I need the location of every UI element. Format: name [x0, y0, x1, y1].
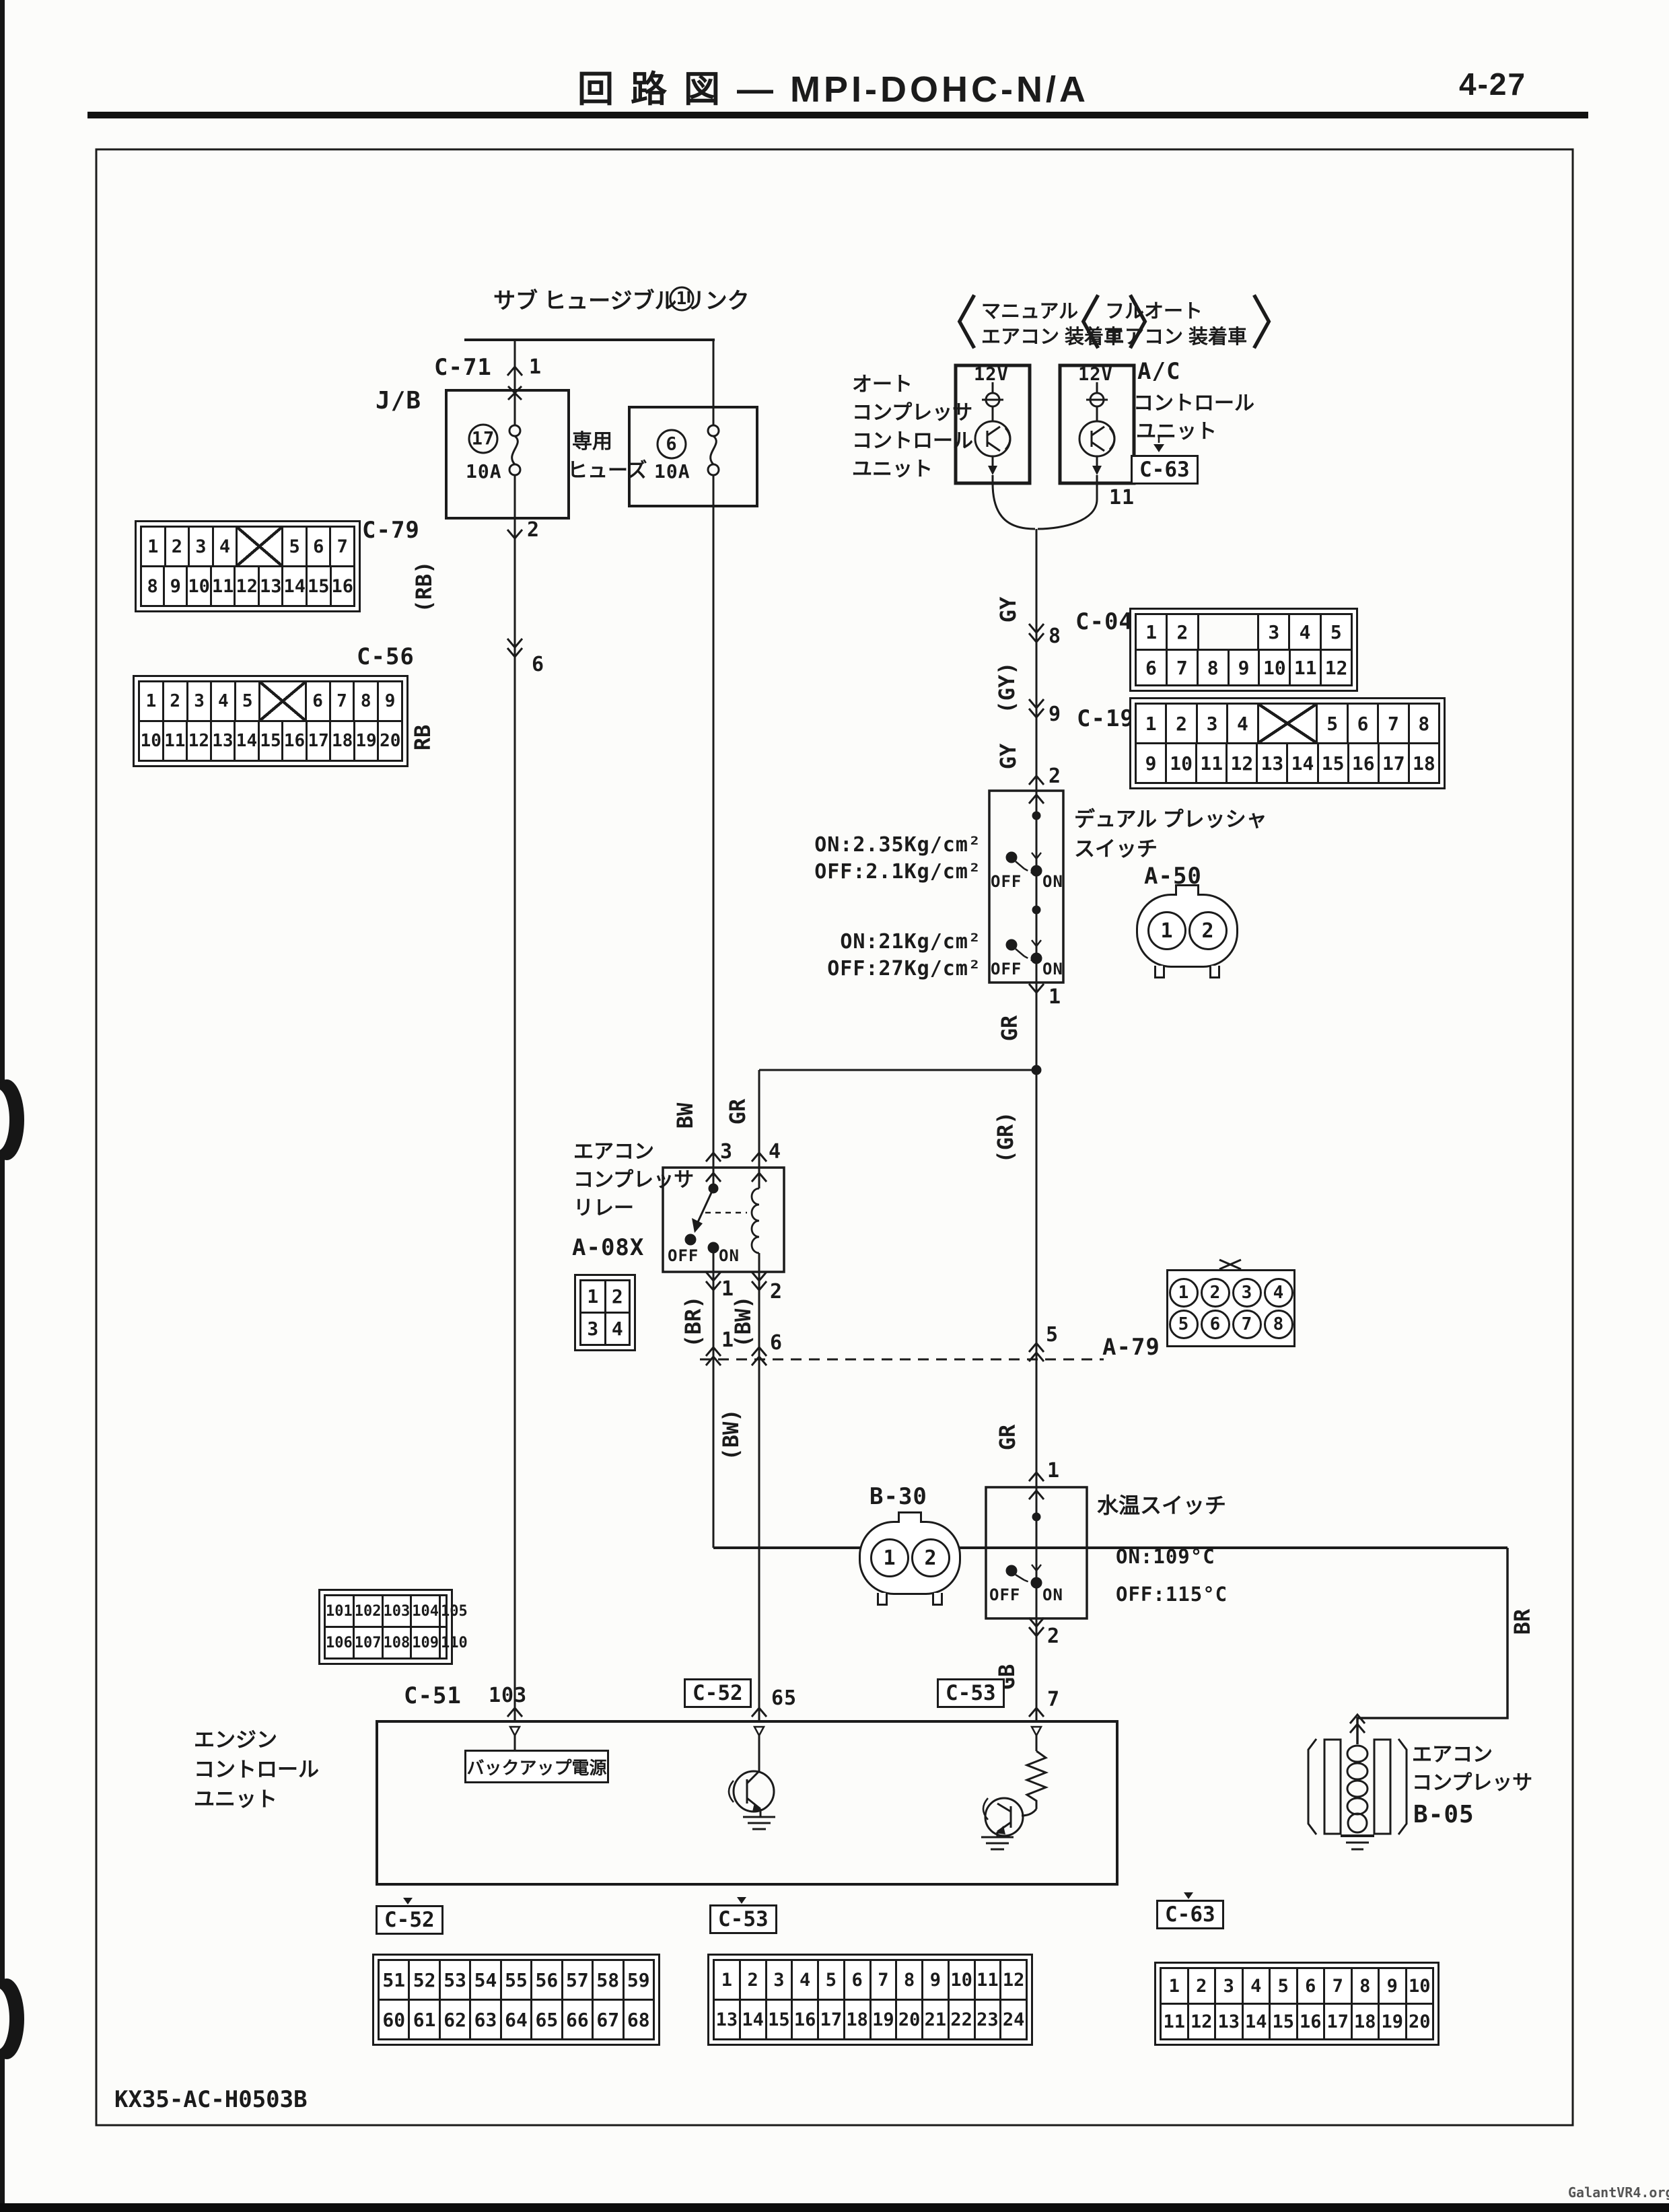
pin-cell-15: 15: [260, 722, 284, 760]
pin-relay-2: 2: [770, 1280, 783, 1304]
pin-cell-5: 5: [1318, 705, 1348, 742]
pressure-switch-name-2: スイッチ: [1074, 832, 1158, 862]
pin-cell-21: 21: [923, 2001, 950, 2038]
connector-body: 1234567891011121314151617181920: [1160, 1967, 1434, 2040]
pin-cell-4: 4: [606, 1314, 629, 1344]
pin-a79-6: 6: [770, 1331, 783, 1355]
pin-cell-19: 19: [1380, 2005, 1407, 2038]
connector-body: 123456789101112131415161718192021222324: [713, 1959, 1028, 2040]
fullauto-ac-tag: 〈 フルオート エアコン 装着車 〉: [1051, 296, 1301, 353]
pin-cell-6: 6: [1298, 1969, 1326, 2003]
connector-ref-b30: B-30: [869, 1483, 927, 1510]
pin-cell-52: 52: [410, 1961, 440, 1999]
water-switch-off-temp: OFF:115°C: [1116, 1583, 1228, 1606]
wire-label-rb-paren: (RB): [411, 561, 437, 612]
pin-cell-4: 4: [1228, 705, 1258, 742]
pin-cell-10: 10: [188, 567, 212, 605]
pressure-lo-off: OFF:27Kg/cm²: [774, 957, 981, 980]
pin-cell-5: 5: [1271, 1969, 1298, 2003]
fusible-link-label: サブ ヒュージブル リンク: [493, 283, 750, 315]
blocked-cavity: [1259, 705, 1318, 742]
pin-relay-4: 4: [769, 1140, 781, 1164]
pin-cell-5: 5: [283, 528, 308, 565]
pin-row: 12: [581, 1281, 629, 1312]
bracket-open: 〈: [1051, 292, 1102, 357]
pin-cell-2: 2: [1189, 1969, 1217, 2003]
connector-leg: [1154, 966, 1165, 978]
connector-ref-c51: C-51: [404, 1682, 462, 1709]
component-boxes: [377, 365, 1134, 1884]
pin-cell-22: 22: [950, 2001, 976, 2038]
junction-block-label: J/B: [376, 387, 421, 415]
pin-cell-68: 68: [625, 2001, 653, 2038]
pin-cell-54: 54: [471, 1961, 501, 1999]
pin-cell-5: 5: [236, 682, 260, 720]
pin-cell-1: 1: [1137, 615, 1168, 649]
pin-row: 131415161718192021222324: [715, 1999, 1026, 2038]
connector-body: 12345678910111213141516: [140, 526, 355, 607]
pin-3: 3: [1232, 1278, 1262, 1308]
pin-cell-14: 14: [283, 567, 308, 605]
page-frame: [87, 112, 1588, 2125]
pin-cell-15: 15: [1271, 2005, 1298, 2038]
pin-row: 8910111213141516: [142, 565, 353, 605]
connector-c51: 101102103104105106107108109110: [318, 1589, 453, 1665]
connector-tab: [1175, 884, 1199, 896]
schematic-lines: [0, 0, 1669, 2212]
connector-body: 123456789101112131415161718: [1135, 703, 1440, 784]
connector-body: 101102103104105106107108109110: [324, 1594, 448, 1660]
pressure-switch-name-1: デュアル プレッシャ: [1074, 802, 1267, 832]
pin-row: 12345: [1137, 615, 1351, 649]
psw2-off-label: OFF: [991, 960, 1022, 978]
pin-cell-6: 6: [1349, 705, 1379, 742]
pin-cell-17: 17: [1380, 744, 1410, 782]
pin-row: 606162636465666768: [380, 1999, 653, 2038]
pin-4: 4: [1264, 1278, 1293, 1308]
pin-row: 515253545556575859: [380, 1961, 653, 1999]
blocked-cavity: [238, 528, 283, 565]
pin-cell-106: 106: [326, 1628, 355, 1657]
ecu-name-3: ユニット: [194, 1782, 277, 1812]
pin-11: 11: [1109, 486, 1135, 509]
pin-cell-2: 2: [164, 682, 188, 720]
connector-body: 1234567891011121314151617181920: [138, 680, 403, 762]
pin-b30-2: 2: [1047, 1625, 1060, 1648]
pressure-lo-on: ON:21Kg/cm²: [774, 930, 981, 954]
fuse-6-number: 6: [666, 434, 677, 455]
pin-row: 123456789101112: [715, 1961, 1026, 1999]
pin-cell-7: 7: [331, 528, 353, 565]
pin-cell-15: 15: [767, 2001, 793, 2038]
pin-c71-1: 1: [529, 355, 542, 379]
pin-row: 1234: [1169, 1278, 1293, 1308]
pin-cell-18: 18: [845, 2001, 872, 2038]
pin-cell-4: 4: [1290, 615, 1321, 649]
pin-cell-61: 61: [410, 2001, 440, 2038]
pin-cell-12: 12: [1001, 1961, 1026, 1999]
connector-leg: [932, 1593, 943, 1606]
pin-row: 12345678910: [1162, 1969, 1432, 2003]
pin-cell-9: 9: [379, 682, 401, 720]
pin-cell-1: 1: [1162, 1969, 1189, 2003]
pin-psw-2: 2: [1049, 764, 1061, 788]
ac-control-unit-2: コントロール: [1133, 386, 1254, 416]
pressure-hi-on: ON:2.35Kg/cm²: [774, 833, 981, 857]
connector-c19: 123456789101112131415161718: [1129, 697, 1446, 789]
pin-cell-12: 12: [188, 722, 212, 760]
cavity-gap: [1199, 615, 1260, 649]
wire-label-gr-2: GR: [995, 1425, 1020, 1451]
pin-cell-14: 14: [1244, 2005, 1271, 2038]
pin-cell-6: 6: [307, 682, 331, 720]
pin-cell-20: 20: [897, 2001, 923, 2038]
pin-cell-13: 13: [715, 2001, 741, 2038]
connector-b30: 12: [859, 1521, 961, 1595]
pin-row: 5678: [1169, 1310, 1293, 1339]
wire-label-gy-2: GY: [995, 744, 1021, 770]
connector-c04: 123456789101112: [1129, 608, 1358, 692]
pin-cell-110: 110: [441, 1628, 468, 1657]
page-number: 4-27: [1459, 66, 1526, 102]
pin-cell-6: 6: [845, 1961, 872, 1999]
connector-ref-c56: C-56: [357, 643, 415, 670]
pin-row: 11121314151617181920: [1162, 2003, 1432, 2038]
pin-cell-1: 1: [142, 528, 166, 565]
pin-cell-1: 1: [715, 1961, 741, 1999]
watermark: GalantVR4.org: [1568, 2184, 1669, 2201]
wire-label-br: BR: [1510, 1609, 1535, 1635]
pin-cell-105: 105: [441, 1596, 468, 1626]
connector-ref-b05: B-05: [1413, 1801, 1475, 1828]
pin-cell-107: 107: [355, 1628, 384, 1657]
ecu-name-2: コントロール: [194, 1752, 319, 1783]
pin-row: 34: [581, 1312, 629, 1344]
pin-cell-16: 16: [793, 2001, 819, 2038]
pin-cell-20: 20: [379, 722, 401, 760]
ecu-transistors: [510, 1727, 1046, 1849]
pin-b30-1: 1: [1047, 1459, 1060, 1483]
scan-artifacts: [0, 0, 1669, 2212]
connector-body: 123456789101112: [1135, 613, 1353, 686]
pin-cell-3: 3: [767, 1961, 793, 1999]
ac-control-unit-3: ユニット: [1136, 415, 1217, 444]
pin-5: 5: [1169, 1310, 1199, 1339]
pin-cell-11: 11: [1291, 651, 1322, 684]
fuse-17-number: 17: [472, 429, 495, 450]
pin-cell-11: 11: [164, 722, 188, 760]
pin-c79-2: 2: [527, 518, 540, 542]
pin-cell-7: 7: [1325, 1969, 1353, 2003]
b30-off-label: OFF: [989, 1585, 1020, 1604]
pin-row: 9101112131415161718: [1137, 742, 1438, 782]
pin-c19-9: 9: [1049, 703, 1061, 726]
wire-label-gy-paren: (GY): [994, 662, 1020, 713]
pin-cell-102: 102: [355, 1596, 384, 1626]
wire-label-gy-1: GY: [995, 597, 1021, 623]
wire-label-gr-paren: (GR): [993, 1111, 1018, 1163]
wiring-diagram-page: 回 路 図 — MPI-DOHC-N/A 4-27 サブ ヒュージブル リンク …: [0, 0, 1669, 2212]
pin-cell-4: 4: [1244, 1969, 1271, 2003]
relay-on-label: ON: [719, 1246, 740, 1265]
wire-label-bw-paren-2: (BW): [718, 1408, 744, 1460]
pin-cell-108: 108: [384, 1628, 413, 1657]
pin-cell-12: 12: [1189, 2005, 1217, 2038]
pin-cell-10: 10: [1260, 651, 1291, 684]
pin-c04-8: 8: [1049, 625, 1061, 648]
pin-cell-11: 11: [1162, 2005, 1189, 2038]
pin-cell-10: 10: [1407, 1969, 1433, 2003]
pin-cell-66: 66: [563, 2001, 594, 2038]
connector-c56: 1234567891011121314151617181920: [133, 675, 409, 767]
pin-cell-18: 18: [1353, 2005, 1380, 2038]
pin-ecu-7: 7: [1047, 1688, 1060, 1711]
connector-ref-c63-top: C-63: [1131, 455, 1199, 485]
pin-cell-2: 2: [606, 1281, 629, 1312]
voltage-12v-left: 12V: [974, 364, 1009, 385]
pin-cell-5: 5: [1322, 615, 1351, 649]
pin-cell-16: 16: [1349, 744, 1380, 782]
fusible-link-number: 1: [676, 289, 688, 309]
auto-compressor-unit-1: オート: [852, 367, 913, 397]
connector-body: 1234: [579, 1279, 631, 1346]
compressor-symbol: [1308, 1739, 1407, 1849]
connector-c63: 1234567891011121314151617181920: [1154, 1962, 1440, 2046]
pin-cell-4: 4: [212, 682, 236, 720]
pin-cell-55: 55: [502, 1961, 532, 1999]
pin-8: 8: [1264, 1310, 1293, 1339]
pin-cell-19: 19: [355, 722, 380, 760]
pin-cell-7: 7: [1379, 705, 1409, 742]
compressor-name-1: エアコン: [1412, 1738, 1493, 1767]
pin-row: 106107108109110: [326, 1626, 446, 1657]
connector-leg: [877, 1593, 888, 1606]
pin-row: 6789101112: [1137, 649, 1351, 684]
pressure-hi-off: OFF:2.1Kg/cm²: [774, 860, 981, 884]
wire-label-gr-relay: GR: [725, 1099, 750, 1125]
pin-c56-6: 6: [532, 653, 544, 676]
pin-cell-4: 4: [793, 1961, 819, 1999]
pin-2: 2: [1201, 1278, 1230, 1308]
pin-cell-17: 17: [1325, 2005, 1353, 2038]
pin-cell-5: 5: [819, 1961, 845, 1999]
compressor-name-2: コンプレッサ: [1412, 1766, 1532, 1795]
pin-cell-64: 64: [502, 2001, 532, 2038]
pin-cell-8: 8: [897, 1961, 923, 1999]
connector-a79: 12345678: [1166, 1269, 1295, 1347]
fullauto-ac-line1: フルオート: [1105, 299, 1247, 324]
pin-1: 1: [1169, 1278, 1199, 1308]
pin-cell-8: 8: [142, 567, 165, 605]
connector-ref-c53-bottom: C-53: [709, 1904, 777, 1934]
pin-7: 7: [1232, 1310, 1262, 1339]
pin-cell-16: 16: [283, 722, 308, 760]
pin-cell-12: 12: [236, 567, 260, 605]
pin-row: 1234567: [142, 528, 353, 565]
pin-cell-14: 14: [741, 2001, 767, 2038]
pin-cell-13: 13: [1216, 2005, 1244, 2038]
fuse-17-rating: 10A: [466, 460, 502, 483]
connector-ref-c71: C-71: [434, 354, 492, 381]
b30-on-label: ON: [1042, 1585, 1063, 1604]
pin-row: 12345678: [1137, 705, 1438, 742]
relay-name-2: コンプレッサ: [573, 1163, 694, 1192]
connector-c53: 123456789101112131415161718192021222324: [707, 1954, 1033, 2046]
pin-cell-3: 3: [1259, 615, 1290, 649]
wire-label-gr-1: GR: [997, 1015, 1022, 1042]
pin-cell-3: 3: [1198, 705, 1228, 742]
pin-psw-1: 1: [1049, 985, 1061, 1009]
relay-off-label: OFF: [668, 1246, 699, 1265]
pin-cell-13: 13: [260, 567, 284, 605]
pin-cell-18: 18: [331, 722, 355, 760]
pin-cell-16: 16: [1298, 2005, 1326, 2038]
pin-cell-2: 2: [166, 528, 190, 565]
connector-c79: 12345678910111213141516: [135, 520, 361, 612]
psw1-on-label: ON: [1042, 872, 1063, 891]
pin-cell-8: 8: [1410, 705, 1438, 742]
pin-cell-23: 23: [976, 2001, 1002, 2038]
pin-cell-7: 7: [872, 1961, 898, 1999]
pin-cell-63: 63: [471, 2001, 501, 2038]
pin-cell-67: 67: [594, 2001, 624, 2038]
connector-ref-c19: C-19: [1077, 705, 1135, 732]
pin-cell-4: 4: [214, 528, 238, 565]
wire-label-bw: BW: [672, 1103, 698, 1129]
pin-cell-101: 101: [326, 1596, 355, 1626]
pin-cell-65: 65: [532, 2001, 563, 2038]
pin-cell-60: 60: [380, 2001, 410, 2038]
fuse-6-rating: 10A: [654, 460, 690, 483]
voltage-12v-right: 12V: [1078, 364, 1113, 385]
pin-a79-5: 5: [1046, 1323, 1059, 1347]
connector-ref-c79: C-79: [362, 517, 420, 544]
pin-cell-8: 8: [1353, 1969, 1380, 2003]
bracket-open: 〈: [927, 292, 979, 357]
pin-row: 123456789: [140, 682, 401, 720]
connector-a08x: 1234: [574, 1274, 636, 1351]
connector-a50: 12: [1136, 894, 1238, 968]
pin-cell-1: 1: [581, 1281, 606, 1312]
connector-ref-a79: A-79: [1102, 1334, 1160, 1361]
blocked-cavity: [260, 682, 307, 720]
pin-cell-57: 57: [563, 1961, 594, 1999]
pin-cell-51: 51: [380, 1961, 410, 1999]
pin-cell-15: 15: [308, 567, 332, 605]
pin-cell-14: 14: [1288, 744, 1318, 782]
auto-compressor-unit-4: ユニット: [852, 452, 933, 482]
pin-cell-20: 20: [1407, 2005, 1433, 2038]
connector-ref-a08x: A-08X: [572, 1234, 644, 1261]
water-switch-on-temp: ON:109°C: [1116, 1545, 1215, 1568]
auto-compressor-unit-2: コンプレッサ: [852, 396, 972, 425]
pin-cell-12: 12: [1228, 744, 1258, 782]
pin-2: 2: [1188, 911, 1228, 950]
bracket-close: 〉: [1250, 292, 1301, 357]
connector-c52: 515253545556575859606162636465666768: [372, 1954, 660, 2046]
ecu-name-1: エンジン: [194, 1723, 277, 1753]
pin-cell-8: 8: [1199, 651, 1230, 684]
pin-cell-56: 56: [532, 1961, 563, 1999]
pin-cell-17: 17: [308, 722, 332, 760]
pin-relay-3: 3: [720, 1140, 733, 1164]
pin-ecu-103: 103: [489, 1684, 527, 1707]
pin-row: 12: [1147, 911, 1228, 950]
pin-cell-10: 10: [1167, 744, 1197, 782]
pin-cell-104: 104: [412, 1596, 441, 1626]
connector-ref-c52-mid: C-52: [684, 1678, 752, 1708]
connector-ref-c53-mid: C-53: [937, 1678, 1005, 1708]
page-title: 回 路 図 — MPI-DOHC-N/A: [577, 59, 1089, 112]
pin-cell-12: 12: [1322, 651, 1351, 684]
pin-cell-18: 18: [1410, 744, 1438, 782]
pin-cell-9: 9: [923, 1961, 950, 1999]
psw1-off-label: OFF: [991, 872, 1022, 891]
switch-symbols: [686, 812, 1041, 1587]
pin-cell-3: 3: [190, 528, 214, 565]
document-code: KX35-AC-H0503B: [114, 2086, 308, 2113]
pin-row: 101102103104105: [326, 1596, 446, 1626]
pin-cell-14: 14: [236, 722, 260, 760]
pin-ecu-65: 65: [771, 1686, 797, 1710]
pin-cell-3: 3: [581, 1314, 606, 1344]
water-switch-name: 水温スイッチ: [1097, 1489, 1226, 1520]
pin-cell-9: 9: [1137, 744, 1167, 782]
pin-cell-1: 1: [140, 682, 164, 720]
pin-cell-7: 7: [331, 682, 355, 720]
pin-cell-16: 16: [332, 567, 354, 605]
pin-a79-1: 1: [721, 1328, 734, 1352]
pin-cell-11: 11: [212, 567, 236, 605]
pin-cell-10: 10: [950, 1961, 976, 1999]
wire-label-br-paren: (BR): [680, 1295, 706, 1347]
pin-cell-103: 103: [384, 1596, 413, 1626]
pin-cell-6: 6: [308, 528, 332, 565]
dedicated-fuse-label-2: ヒューズ: [567, 454, 647, 483]
pin-cell-53: 53: [441, 1961, 471, 1999]
pin-cell-11: 11: [1197, 744, 1228, 782]
auto-compressor-unit-3: コントロール: [852, 424, 973, 454]
flow-arrows: [403, 367, 1365, 1904]
pin-cell-109: 109: [412, 1628, 441, 1657]
connector-ref-c04: C-04: [1075, 608, 1133, 635]
pin-row: 12: [870, 1538, 950, 1577]
pin-cell-13: 13: [1258, 744, 1288, 782]
pin-cell-11: 11: [976, 1961, 1002, 1999]
connector-tab: [898, 1511, 922, 1523]
relay-name-3: リレー: [573, 1191, 634, 1221]
pin-6: 6: [1201, 1310, 1230, 1339]
connector-ref-c63-bottom: C-63: [1156, 1900, 1224, 1929]
pin-cell-3: 3: [1216, 1969, 1244, 2003]
connector-leg: [1209, 966, 1220, 978]
pin-1: 1: [870, 1538, 909, 1577]
pin-2: 2: [911, 1538, 950, 1577]
relay-name-1: エアコン: [573, 1135, 654, 1164]
pin-cell-10: 10: [140, 722, 164, 760]
pin-cell-7: 7: [1168, 651, 1199, 684]
wire-label-rb: RB: [410, 725, 435, 751]
fullauto-ac-line2: エアコン 装着車: [1105, 324, 1247, 350]
pin-cell-9: 9: [165, 567, 188, 605]
pin-row: 1011121314151617181920: [140, 720, 401, 760]
pin-cell-8: 8: [355, 682, 379, 720]
pin-cell-2: 2: [1168, 615, 1199, 649]
dedicated-fuse-label-1: 専用: [572, 425, 612, 454]
pin-cell-2: 2: [741, 1961, 767, 1999]
pin-cell-3: 3: [188, 682, 213, 720]
ac-control-unit-1: A/C: [1137, 358, 1180, 385]
